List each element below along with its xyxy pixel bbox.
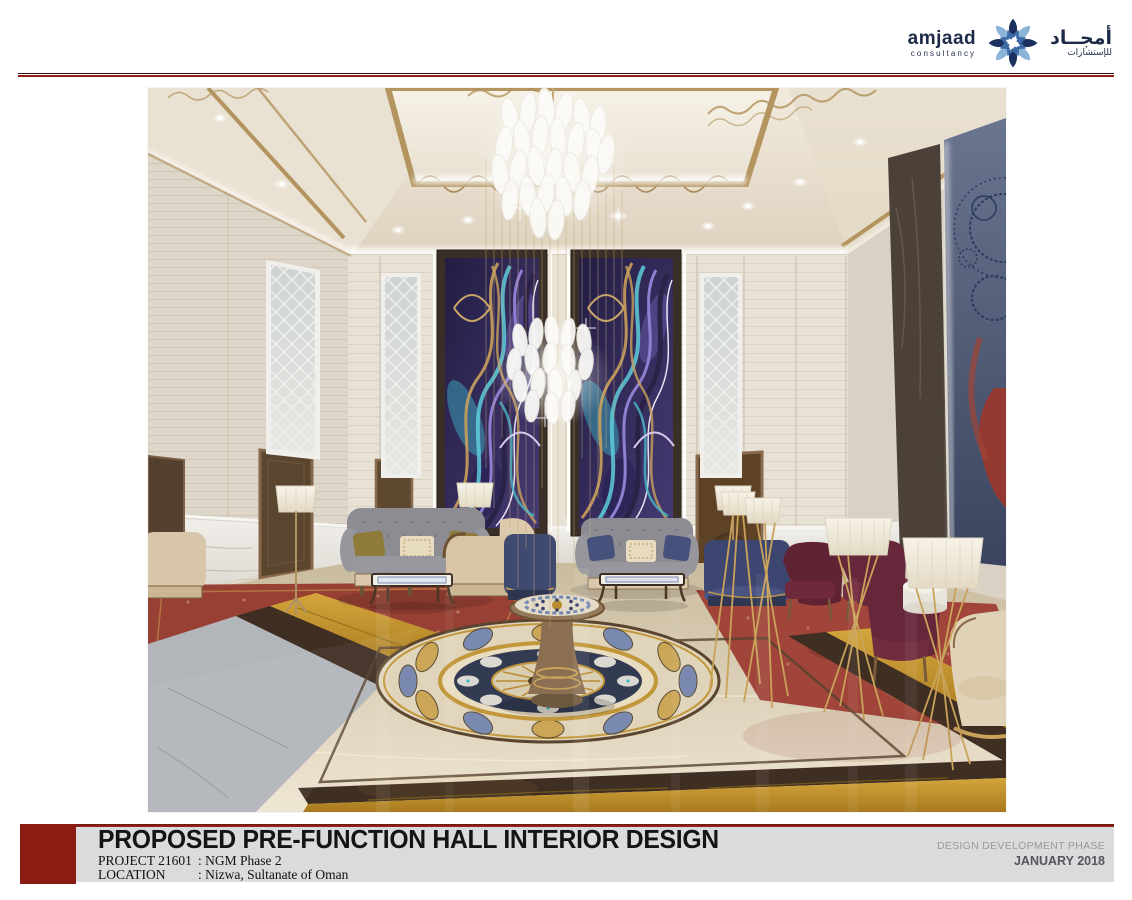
logo-petals [986,16,1040,70]
header-rule [18,73,1114,77]
title-bar: PROPOSED PRE-FUNCTION HALL INTERIOR DESI… [76,827,1114,882]
brand-latin: amjaad consultancy [908,29,976,58]
phase-block: DESIGN DEVELOPMENT PHASE JANUARY 2018 [937,840,1105,867]
mirror-left-wall [266,260,320,460]
date-text: JANUARY 2018 [937,855,1105,867]
cream-chair-far-left [148,532,206,598]
brand-arabic: أمجــاد للإستشارات [1050,28,1112,58]
presentation-page: amjaad consultancy [0,0,1132,900]
interior-scene-graphic [148,88,1006,812]
amjaad-logo-icon [986,16,1040,70]
mirror-back-right [700,273,742,478]
location-row: LOCATION : Nizwa, Sultanate of Oman [98,868,1114,882]
page-title: PROPOSED PRE-FUNCTION HALL INTERIOR DESI… [98,827,1084,854]
title-block: PROPOSED PRE-FUNCTION HALL INTERIOR DESI… [20,824,1114,884]
brand-subtitle: consultancy [908,49,976,58]
location-value: : Nizwa, Sultanate of Oman [198,868,348,882]
brand-arabic-name: أمجــاد [1050,28,1112,48]
brand-logo: amjaad consultancy [908,16,1112,70]
project-label: PROJECT 21601 [98,854,198,868]
location-label: LOCATION [98,868,198,882]
brand-name: amjaad [908,29,976,48]
phase-text: DESIGN DEVELOPMENT PHASE [937,840,1105,852]
interior-rendering [148,88,1006,812]
mirror-back-left [381,273,421,478]
title-bar-wrap: PROPOSED PRE-FUNCTION HALL INTERIOR DESI… [76,824,1114,884]
navy-armchair-center [504,534,556,600]
brand-arabic-subtitle: للإستشارات [1050,48,1112,58]
accent-block [20,824,76,884]
project-value: : NGM Phase 2 [198,854,282,868]
sofa-right [571,518,703,599]
